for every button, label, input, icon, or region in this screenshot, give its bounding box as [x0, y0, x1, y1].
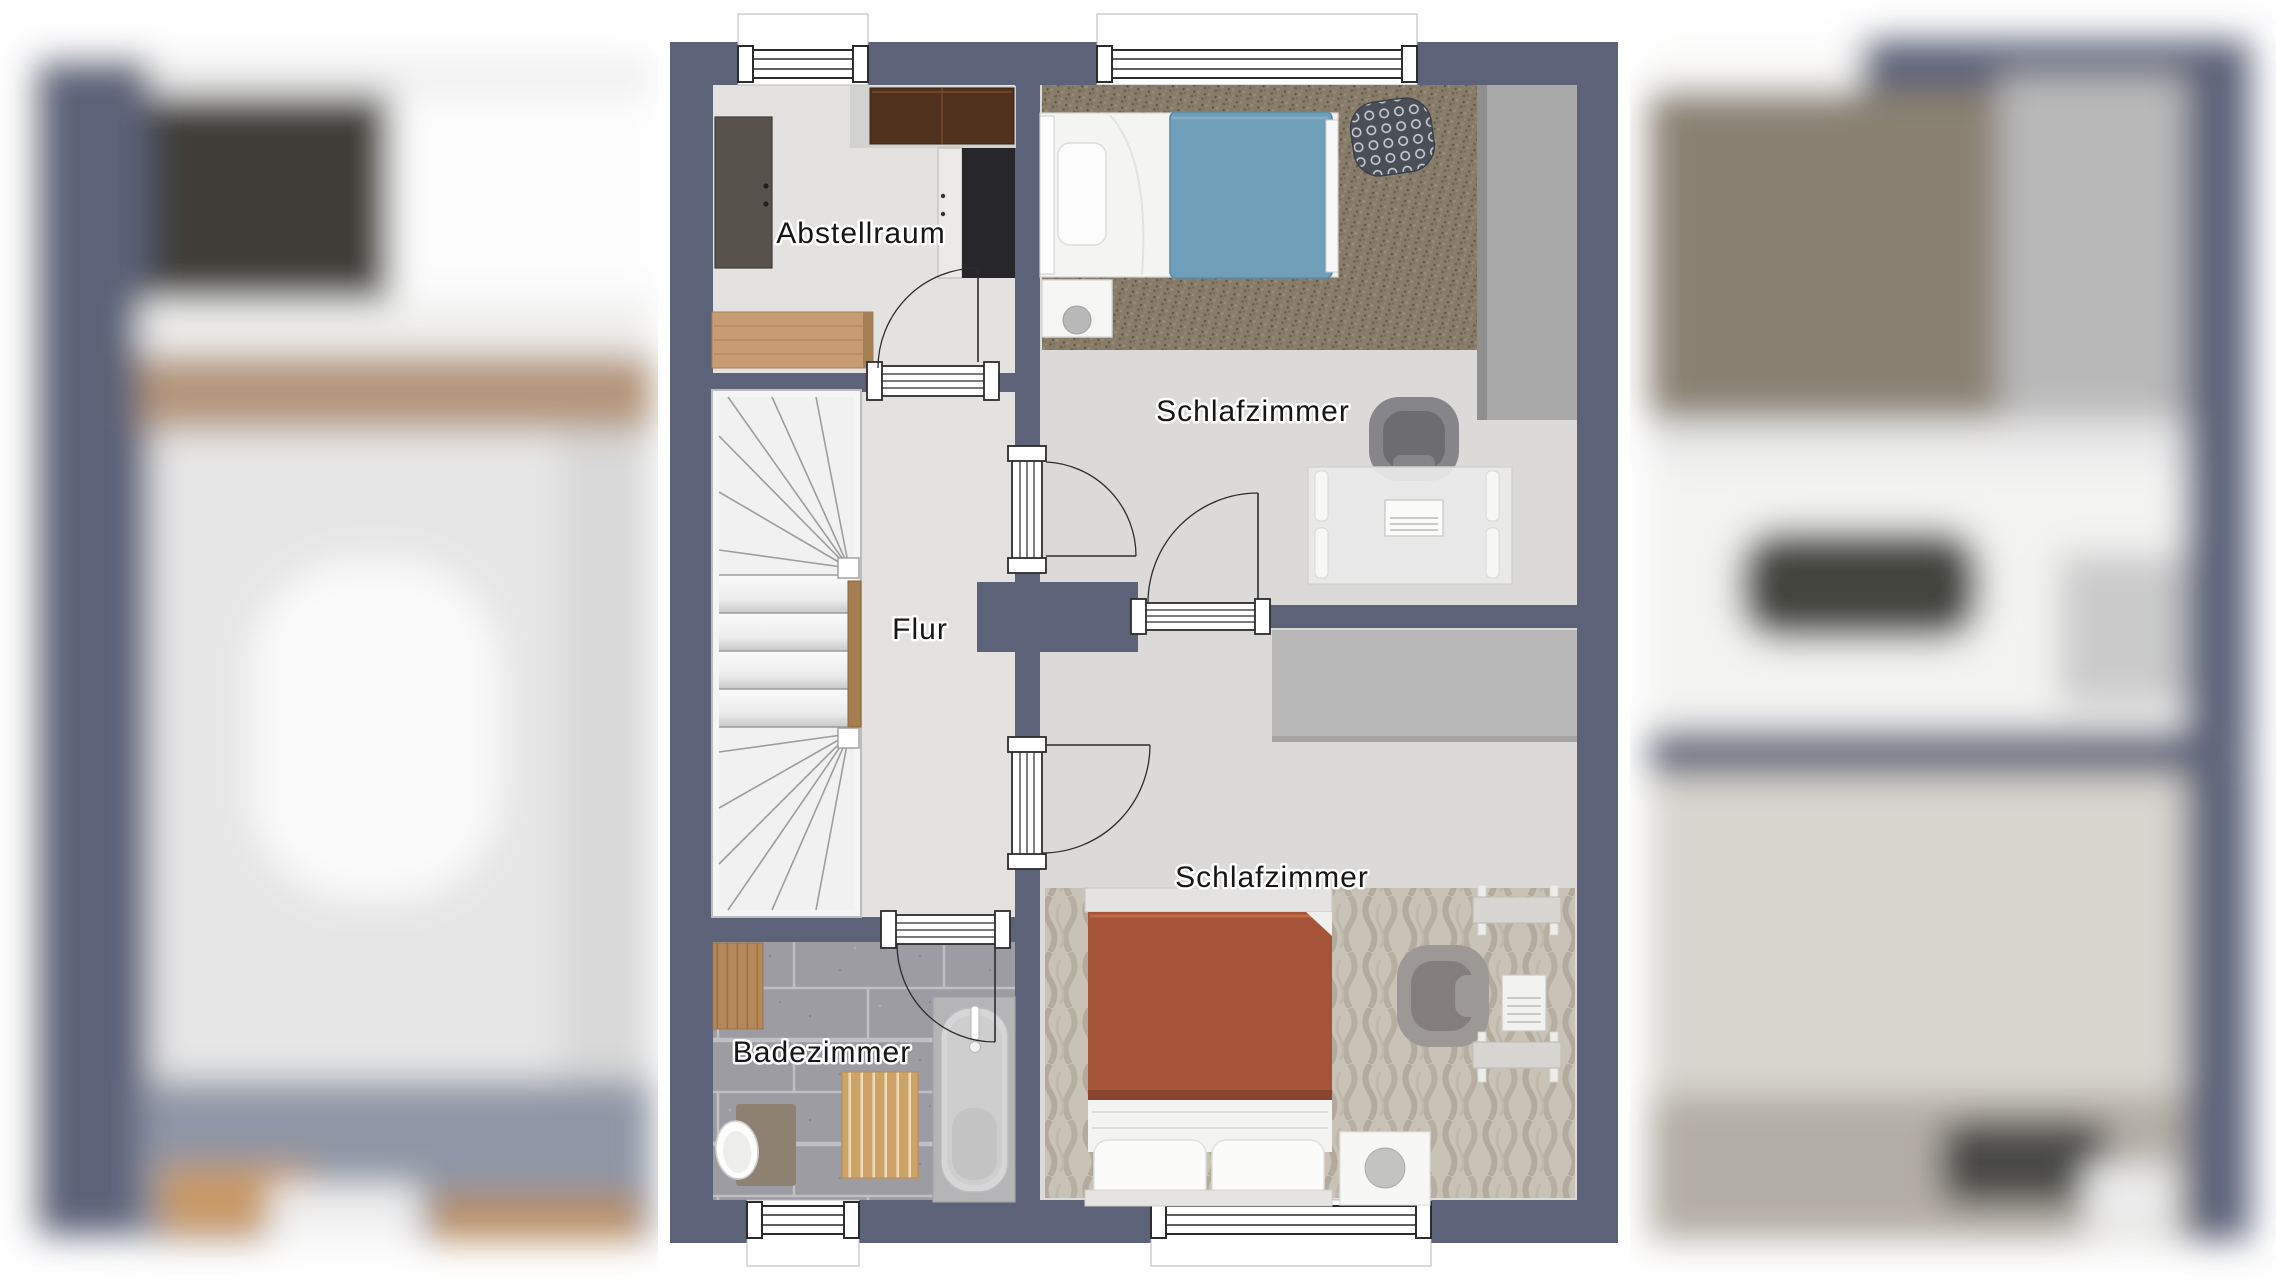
floorplan-canvas: Abstellraum Schlafzimmer Flur Schlafzimm…	[0, 0, 2276, 1280]
pouf-patterned	[1347, 95, 1438, 180]
duvet-rust	[1088, 912, 1332, 1108]
wall-exterior-right	[1577, 42, 1618, 1243]
bed-single-blue	[1040, 112, 1338, 278]
stair-handrail	[848, 581, 861, 727]
bathtub-tap	[971, 1006, 979, 1040]
headboard	[1085, 1190, 1332, 1206]
room-label-schlafzimmer-bottom: Schlafzimmer	[1175, 861, 1369, 894]
window-badezimmer	[747, 1200, 859, 1266]
adjacent-floorplan-left-blurred	[30, 55, 652, 1240]
desk	[1308, 467, 1512, 584]
desk-rail-bottom	[1473, 1042, 1561, 1068]
sideboard-gray	[1272, 630, 1577, 742]
pillow	[1058, 143, 1106, 245]
wardrobe-dark	[715, 117, 772, 268]
wall-exterior-left	[670, 42, 713, 1243]
window-schlafzimmer-top	[1097, 14, 1417, 85]
wardrobe-gray	[1477, 85, 1577, 420]
wall-bedroom-divider	[1262, 605, 1577, 628]
bath-cabinet-wood	[713, 943, 763, 1029]
wall-abstellraum-right	[1015, 85, 1040, 392]
staircase	[712, 390, 861, 917]
room-label-flur: Flur	[892, 613, 948, 646]
room-label-abstellraum: Abstellraum	[776, 217, 945, 250]
adjacent-floorplan-right-blurred	[1650, 40, 2250, 1240]
wall-badezimmer-right	[1015, 863, 1040, 1200]
room-label-schlafzimmer-top: Schlafzimmer	[1156, 395, 1350, 428]
stair-newel-bottom	[838, 728, 859, 748]
cabinet-black	[962, 148, 1015, 278]
window-schlafzimmer-bottom	[1151, 1200, 1431, 1266]
armchair	[1397, 945, 1489, 1047]
window-abstellraum	[738, 14, 868, 85]
wall-pillar-center	[977, 582, 1138, 652]
screenshot-root: Abstellraum Schlafzimmer Flur Schlafzimm…	[0, 0, 2276, 1280]
duvet-blue	[1170, 112, 1332, 278]
lamp	[1063, 306, 1091, 334]
desk-rail-top	[1473, 897, 1561, 923]
floorplan-sheet: Abstellraum Schlafzimmer Flur Schlafzimm…	[658, 0, 1630, 1280]
lamp	[1365, 1148, 1405, 1188]
stair-newel-top	[838, 558, 859, 578]
room-label-badezimmer: Badezimmer	[733, 1036, 911, 1069]
bath-mat-slats	[842, 1072, 918, 1178]
